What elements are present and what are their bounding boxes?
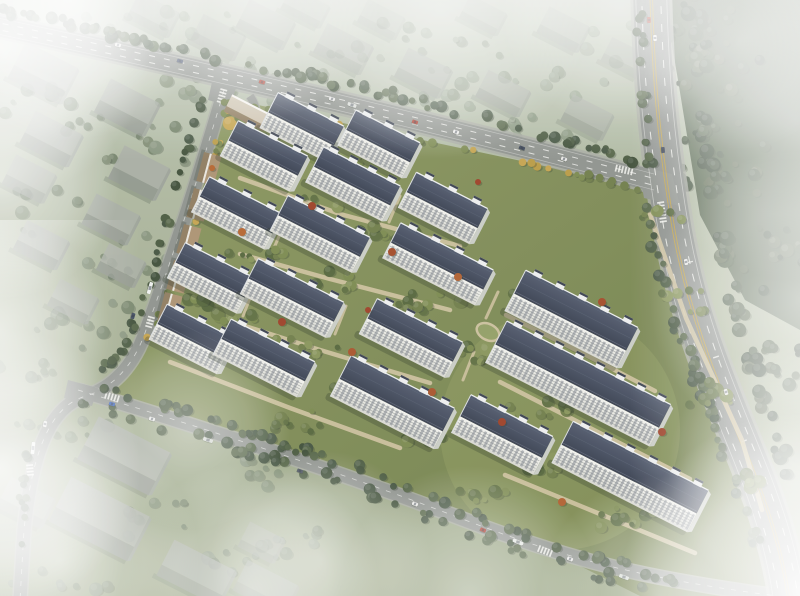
atmosphere-fog <box>0 0 800 596</box>
residential-masterplan-aerial-rendering <box>0 0 800 596</box>
aerial-rendering-viewport <box>0 0 800 596</box>
atmospheric-wash <box>0 0 800 596</box>
